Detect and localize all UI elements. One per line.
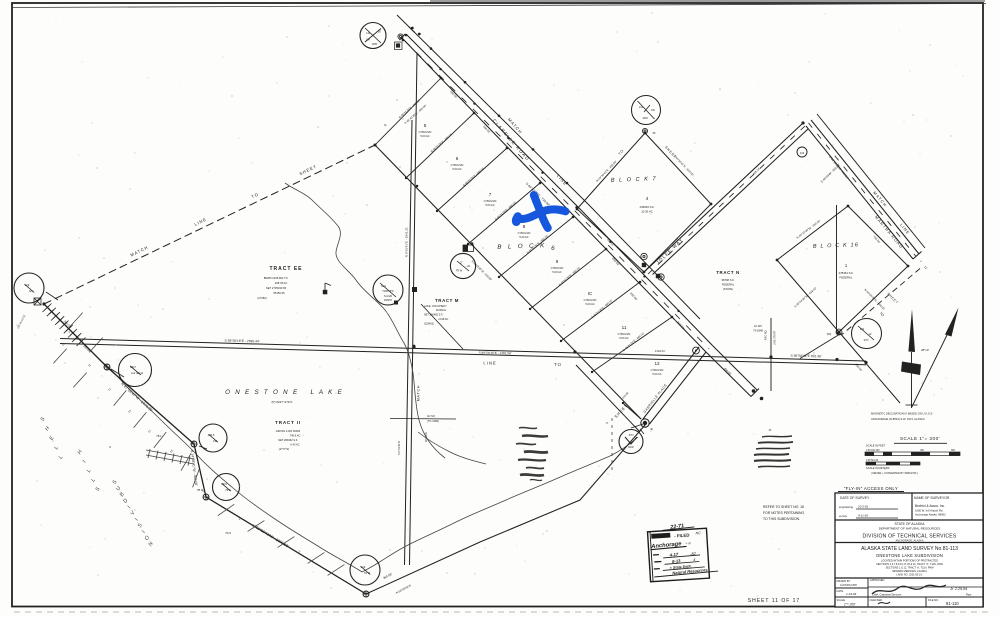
svg-text:12: 12 — [654, 361, 660, 366]
svg-text:TRACT II: TRACT II — [275, 420, 301, 425]
svg-text:CYBULSKI: CYBULSKI — [584, 298, 597, 302]
svg-text:5.00 AC: 5.00 AC — [420, 134, 429, 138]
svg-text:ANCHORAGE (D-8504) S.W. 1974,: ANCHORAGE (D-8504) S.W. 1974, ALASKA — [871, 417, 925, 421]
svg-text:IC: IC — [588, 291, 593, 296]
svg-text:9: 9 — [556, 259, 559, 264]
svg-text:449503 S.F.: 449503 S.F. — [640, 205, 655, 209]
svg-text:1318.50': 1318.50' — [655, 349, 666, 353]
svg-text:10-2-81: 10-2-81 — [858, 505, 869, 509]
svg-text:REFER TO SHEET NO. 18: REFER TO SHEET NO. 18 — [763, 505, 804, 509]
svg-text:L A K E: L A K E — [310, 389, 343, 396]
svg-text:TRACT M: TRACT M — [435, 298, 459, 303]
svg-text:Chief, Cadastral Services: Chief, Cadastral Services — [872, 593, 902, 597]
svg-text:NET 260482 S.F.: NET 260482 S.F. — [424, 314, 443, 317]
svg-text:(P) 6237' 979.6': (P) 6237' 979.6' — [272, 400, 293, 404]
svg-text:Anchorage Alaska, 99502: Anchorage Alaska, 99502 — [915, 513, 946, 517]
svg-text:MAGNETIC DECLINATION IS BASED: MAGNETIC DECLINATION IS BASED ON U.S.G.S… — [871, 412, 933, 416]
svg-text:E4: E4 — [29, 289, 33, 293]
svg-text:(477772): (477772) — [279, 447, 290, 451]
svg-text:B5280 2105.964 T.F.: B5280 2105.964 T.F. — [264, 276, 289, 280]
svg-text:5.00 AC: 5.00 AC — [585, 302, 594, 306]
svg-text:5: 5 — [424, 123, 427, 128]
svg-text:6.43 AC: 6.43 AC — [290, 443, 299, 447]
svg-text:S 89°58'16"E - 2935.44': S 89°58'16"E - 2935.44' — [225, 339, 260, 344]
svg-text:NAME OF SURVEYOR: NAME OF SURVEYOR — [914, 496, 950, 500]
svg-text:GROSS 2.304 60064: GROSS 2.304 60064 — [276, 429, 301, 433]
svg-text:6: 6 — [456, 156, 459, 161]
svg-text:7: 7 — [489, 192, 492, 197]
svg-text:5.00 AC: 5.00 AC — [519, 235, 528, 239]
svg-text:DATE OF SURVEY: DATE OF SURVEY — [840, 496, 870, 500]
svg-text:DRAWN BY: DRAWN BY — [837, 579, 851, 583]
svg-text:AC NO: AC NO — [427, 415, 435, 418]
svg-text:9-11-82: 9-11-82 — [858, 514, 868, 518]
svg-text:L19: L19 — [361, 565, 366, 569]
svg-text:Jr. 2-29-84: Jr. 2-29-84 — [949, 587, 967, 591]
svg-text:1600 W. Int'l Airport Rd.: 1600 W. Int'l Airport Rd. — [915, 509, 943, 513]
svg-text:LAND NO. 3231-82-2-1: LAND NO. 3231-82-2-1 — [896, 574, 923, 577]
svg-text:CYBULSKI: CYBULSKI — [551, 266, 564, 270]
svg-text:1"= 200': 1"= 200' — [844, 603, 856, 607]
svg-text:TRACT EE: TRACT EE — [270, 266, 303, 272]
svg-text:N 0°01'41"E: N 0°01'41"E — [397, 441, 401, 455]
svg-text:CHECKED: CHECKED — [870, 598, 883, 602]
svg-text:0 50 100 200: 0 50 100 200 — [866, 450, 880, 452]
svg-text:MN7: MN7 — [130, 365, 136, 369]
svg-text:S7N: S7N — [629, 434, 634, 437]
svg-text:(50): (50) — [827, 332, 832, 336]
svg-text:ONESTONE LAKE SUBDIVISION: ONESTONE LAKE SUBDIVISION — [876, 553, 943, 558]
svg-text:JT: JT — [606, 421, 609, 425]
svg-text:11: 11 — [622, 325, 627, 330]
svg-text:DATE: DATE — [837, 589, 844, 593]
svg-text:RUSNAL: RUSNAL — [436, 309, 447, 312]
svg-text:CYBULSKI: CYBULSKI — [618, 332, 631, 336]
svg-text:SCALE 1"= 200': SCALE 1"= 200' — [900, 436, 940, 441]
svg-text:L19: L19 — [860, 328, 865, 331]
svg-text:38': 38' — [768, 429, 772, 432]
svg-text:M.C.: M.C. — [381, 284, 387, 288]
svg-text:78 L: 78 L — [156, 434, 162, 438]
svg-text:S-CGR: S-CGR — [384, 295, 392, 298]
svg-text:10.30 AC: 10.30 AC — [641, 210, 653, 214]
svg-text:1935': 1935' — [372, 43, 378, 46]
svg-text:478364 S.F.: 478364 S.F. — [839, 271, 854, 275]
svg-text:CLP,DRS,KMH: CLP,DRS,KMH — [840, 584, 857, 587]
svg-text:"FLY-IN" ACCESS ONLY: "FLY-IN" ACCESS ONLY — [844, 486, 898, 491]
svg-text:Raw: Raw — [966, 593, 971, 597]
svg-text:ALASKA STATE LAND SURVEY No.81: ALASKA STATE LAND SURVEY No.81-113 — [861, 546, 958, 552]
svg-text:APPROVED: APPROVED — [870, 578, 885, 582]
svg-text:28°10': 28°10' — [921, 348, 929, 352]
svg-text:TRACT N: TRACT N — [716, 270, 739, 275]
svg-text:55156 65: 55156 65 — [273, 291, 285, 295]
svg-text:FOR NOTES PERTAINING: FOR NOTES PERTAINING — [763, 511, 804, 515]
svg-text:SCALE IN METERS: SCALE IN METERS — [866, 466, 890, 470]
svg-text:7266 MHz: 7266 MHz — [382, 290, 394, 293]
svg-text:(203402): (203402) — [424, 323, 434, 326]
svg-text:7# W: 7# W — [364, 571, 371, 575]
svg-text:L19: L19 — [25, 283, 30, 287]
svg-text:engineering: engineering — [839, 505, 854, 509]
svg-text:FEDERAL: FEDERAL — [722, 283, 735, 287]
svg-text:AC WC: AC WC — [754, 325, 762, 328]
svg-text:CYBULSKI: CYBULSKI — [451, 163, 464, 167]
svg-text:SCALE: SCALE — [837, 598, 846, 602]
svg-text:4: 4 — [646, 196, 649, 201]
svg-text:- FILED: - FILED — [674, 533, 690, 539]
svg-text:CYBULSKI: CYBULSKI — [518, 231, 531, 235]
svg-text:LAKE. OCCUPIED?: LAKE. OCCUPIED? — [424, 305, 447, 308]
svg-text:98798 S.F.: 98798 S.F. — [722, 278, 735, 282]
svg-text:LINE: LINE — [483, 360, 496, 365]
svg-text:LINE START: LINE START — [774, 330, 777, 345]
svg-text:survey: survey — [839, 514, 848, 518]
svg-text:MATCH: MATCH — [417, 385, 421, 402]
svg-text:Bechtol & Assoc. Inc.: Bechtol & Assoc. Inc. — [915, 504, 945, 508]
svg-text:S7N: S7N — [864, 339, 869, 342]
svg-text:70 9: 70 9 — [225, 531, 231, 535]
svg-text:R1W: R1W — [628, 446, 634, 449]
svg-text:7% EMM: 7% EMM — [753, 330, 763, 333]
svg-text:ARC NO.: ARC NO. — [765, 329, 768, 340]
svg-text:SCALE IN FEET: SCALE IN FEET — [866, 444, 886, 448]
svg-text:TR II: TR II — [221, 482, 227, 486]
svg-text:749.9 AC: 749.9 AC — [290, 434, 301, 438]
svg-text:CYBULSKI: CYBULSKI — [419, 130, 432, 134]
svg-text:O N E S T O N E: O N E S T O N E — [225, 389, 299, 396]
svg-text:= m: = m — [685, 541, 691, 545]
svg-text:(STATE): (STATE) — [723, 287, 733, 291]
svg-text:NC: NC — [695, 531, 701, 535]
svg-text:78 R: 78 R — [197, 488, 204, 492]
svg-text:208.78 AC: 208.78 AC — [275, 281, 288, 285]
svg-text:+5.98 AC: +5.98 AC — [438, 318, 449, 321]
svg-text:STATE OF ALASKA: STATE OF ALASKA — [894, 522, 925, 526]
svg-text:5.00 AC: 5.00 AC — [485, 203, 494, 207]
svg-text:L19: L19 — [639, 106, 644, 109]
svg-text:TR W: TR W — [456, 270, 463, 273]
svg-text:8: 8 — [523, 224, 526, 229]
svg-text:5.00 AC: 5.00 AC — [552, 270, 561, 274]
svg-text:CYBULSKI: CYBULSKI — [651, 368, 664, 372]
svg-text:(7% CMM): (7% CMM) — [427, 420, 439, 423]
svg-text:TO THIS SUBDIVISION.: TO THIS SUBDIVISION. — [763, 517, 800, 521]
svg-text:134: 134 — [800, 151, 805, 155]
svg-text:5.00 AC: 5.00 AC — [452, 167, 461, 171]
svg-text:SET 2735330 65: SET 2735330 65 — [266, 286, 287, 290]
svg-text:SHEET 11 OF 17: SHEET 11 OF 17 — [748, 598, 800, 604]
svg-text:FEDERAL: FEDERAL — [840, 276, 853, 280]
svg-text:5.00 AC: 5.00 AC — [619, 336, 628, 340]
svg-text:DR: DR — [366, 39, 370, 42]
svg-text:-20-: -20- — [466, 266, 470, 268]
svg-text:DR: DR — [651, 109, 655, 112]
svg-text:136.5: 136.5 — [208, 433, 215, 437]
svg-text:L12 4D-11: L12 4D-11 — [131, 371, 144, 375]
svg-text:N 0°01'41"E - 2641.21': N 0°01'41"E - 2641.21' — [405, 226, 409, 257]
svg-text:L19: L19 — [366, 32, 371, 35]
svg-text:1-19-84: 1-19-84 — [846, 592, 857, 596]
svg-text:1935: 1935 — [642, 117, 648, 120]
svg-text:(27450): (27450) — [257, 296, 266, 300]
svg-text:FILE NO.: FILE NO. — [928, 598, 939, 602]
svg-text:NET 280462 S.F.: NET 280462 S.F. — [278, 438, 298, 442]
svg-text:81-110: 81-110 — [946, 601, 959, 606]
svg-text:TO: TO — [554, 362, 562, 367]
svg-text:CYBULSKI: CYBULSKI — [484, 199, 497, 203]
svg-text:5.00 AC: 5.00 AC — [652, 372, 661, 376]
svg-text:ANCHORAGE, ALASKA: ANCHORAGE, ALASKA — [895, 539, 923, 543]
svg-text:DEPARTMENT OF NATURAL RESOURCE: DEPARTMENT OF NATURAL RESOURCES — [879, 527, 941, 531]
svg-text:206257: 206257 — [384, 299, 393, 302]
svg-text:7# E: 7# E — [225, 488, 231, 492]
svg-text:CR: CR — [213, 439, 217, 443]
svg-text:( METER + CONVERTED BY 5280/1: ( METER + CONVERTED BY 5280/1760 ) — [871, 472, 918, 475]
